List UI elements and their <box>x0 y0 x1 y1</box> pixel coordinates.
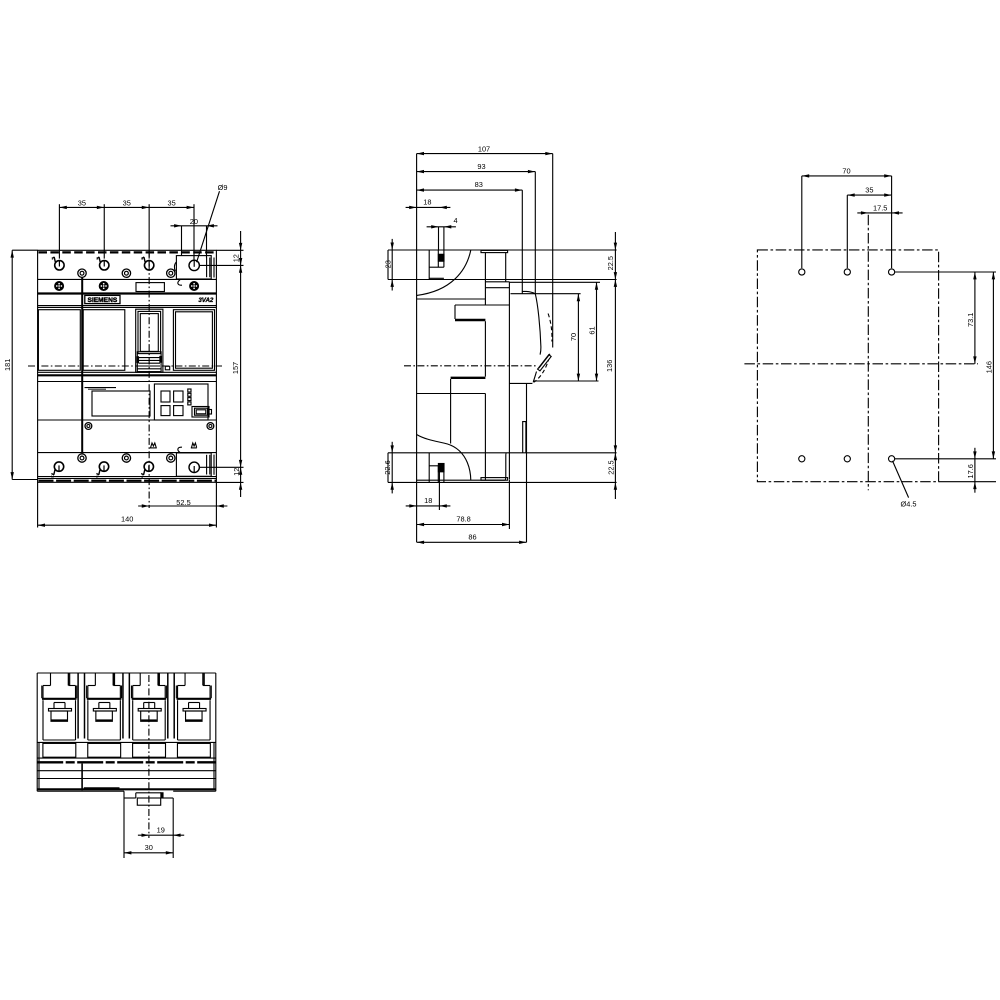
svg-text:35: 35 <box>78 198 86 207</box>
svg-text:73.1: 73.1 <box>966 313 975 327</box>
svg-text:SIEMENS: SIEMENS <box>88 297 118 304</box>
svg-text:86: 86 <box>468 532 476 541</box>
svg-text:19: 19 <box>157 825 165 834</box>
svg-text:181: 181 <box>3 359 12 371</box>
svg-text:12: 12 <box>232 254 241 262</box>
svg-text:17.6: 17.6 <box>966 464 975 478</box>
svg-text:70: 70 <box>842 167 850 176</box>
svg-text:70: 70 <box>569 333 578 341</box>
svg-text:4: 4 <box>453 216 457 225</box>
svg-text:12: 12 <box>232 468 241 476</box>
svg-text:61: 61 <box>587 326 596 334</box>
svg-text:22.5: 22.5 <box>606 460 615 474</box>
svg-text:17.5: 17.5 <box>873 203 887 212</box>
svg-text:18: 18 <box>423 197 431 206</box>
svg-text:22.5: 22.5 <box>606 256 615 270</box>
svg-text:3VA2: 3VA2 <box>198 297 214 304</box>
svg-text:18: 18 <box>424 496 432 505</box>
svg-text:52.5: 52.5 <box>176 498 190 507</box>
svg-text:35: 35 <box>167 198 175 207</box>
svg-text:30: 30 <box>145 843 153 852</box>
svg-text:35: 35 <box>865 186 873 195</box>
svg-text:20: 20 <box>190 217 198 226</box>
svg-text:140: 140 <box>121 515 133 524</box>
svg-text:107: 107 <box>478 144 490 153</box>
svg-text:136: 136 <box>605 360 614 372</box>
svg-text:35: 35 <box>123 198 131 207</box>
svg-text:78.8: 78.8 <box>456 515 470 524</box>
svg-text:Ø9: Ø9 <box>218 183 228 192</box>
svg-text:93: 93 <box>477 162 485 171</box>
svg-text:146: 146 <box>984 361 993 373</box>
svg-text:Ø4.5: Ø4.5 <box>901 499 917 508</box>
svg-text:83: 83 <box>475 180 483 189</box>
svg-text:157: 157 <box>231 362 240 374</box>
